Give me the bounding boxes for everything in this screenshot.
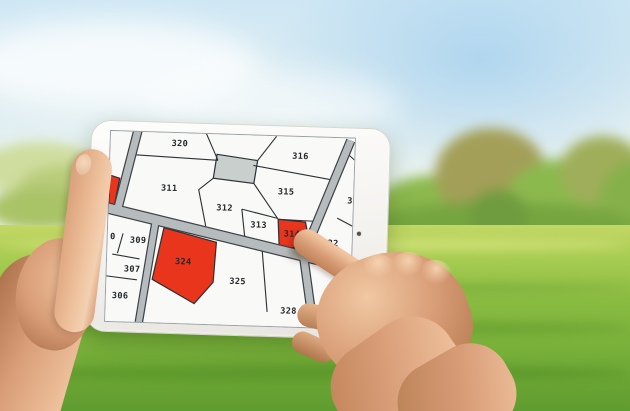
photo-scene: 3203163113153123133143332030930730632432…: [0, 0, 630, 411]
parcel-label-311: 311: [161, 184, 178, 194]
parcel-label-309: 309: [130, 236, 147, 246]
parcel-label-328: 328: [280, 306, 297, 316]
parcel-label-307: 307: [124, 264, 141, 274]
parcel-label-312: 312: [216, 203, 233, 213]
parcel-label-3: 3: [347, 196, 353, 206]
parcel-label-316: 316: [292, 152, 309, 162]
parcel-label-324: 324: [175, 257, 192, 267]
parcel-label-313: 313: [250, 220, 267, 230]
parcel-label-306: 306: [112, 291, 129, 301]
parcel-label-0: 0: [110, 232, 116, 242]
parcel-label-325: 325: [229, 277, 246, 287]
parcel-label-320: 320: [171, 139, 188, 149]
front-camera-icon: [357, 232, 361, 236]
parcel-label-315: 315: [278, 187, 295, 197]
knuckle: [362, 254, 394, 278]
cadastral-map: 3203163113153123133143332030930730632432…: [105, 131, 355, 329]
tablet-screen[interactable]: 3203163113153123133143332030930730632432…: [104, 130, 356, 330]
grass-streak: [0, 365, 630, 381]
